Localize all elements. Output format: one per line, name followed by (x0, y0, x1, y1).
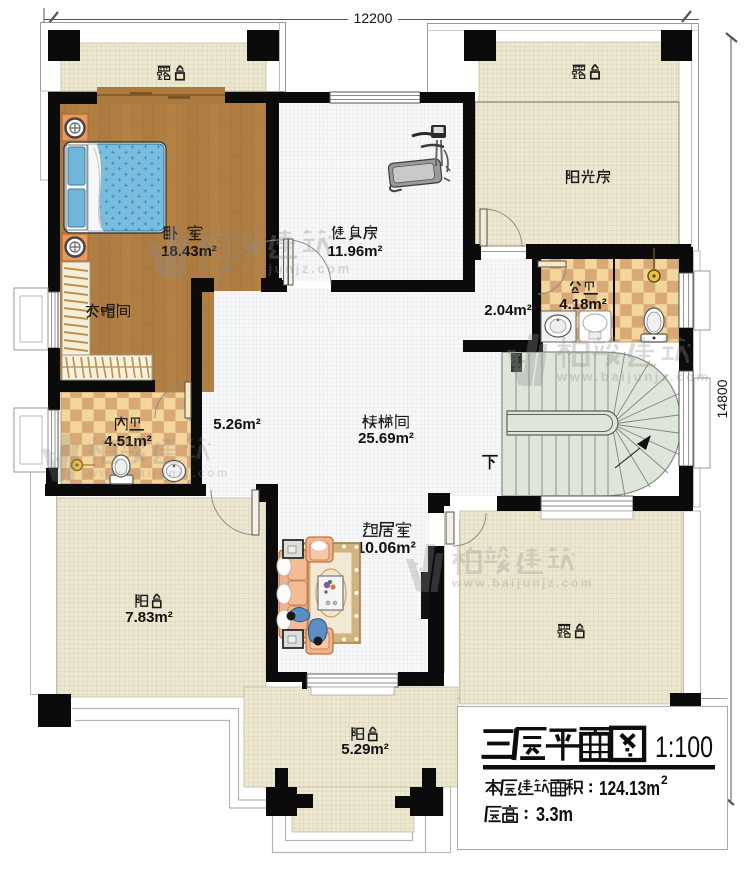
svg-text:www.baijunjz.com: www.baijunjz.com (451, 576, 594, 590)
svg-text:2.04m²: 2.04m² (484, 302, 532, 319)
svg-text:124.13m: 124.13m (599, 778, 660, 800)
svg-text:5.26m²: 5.26m² (213, 416, 261, 433)
svg-text:10.06m²: 10.06m² (356, 540, 416, 557)
svg-text:5.29m²: 5.29m² (341, 741, 389, 758)
svg-text:14800: 14800 (714, 379, 730, 418)
svg-text:1:100: 1:100 (655, 731, 713, 764)
svg-text:2: 2 (661, 773, 668, 787)
svg-text:www.baijunjz.com: www.baijunjz.com (556, 369, 711, 384)
svg-text:25.69m²: 25.69m² (358, 430, 414, 447)
svg-text:7.83m²: 7.83m² (125, 609, 173, 626)
svg-text:www.baijunjz.com: www.baijunjz.com (87, 466, 230, 480)
svg-text:4.18m²: 4.18m² (559, 296, 607, 313)
svg-text:11.96m²: 11.96m² (327, 243, 382, 260)
svg-text:12200: 12200 (354, 10, 393, 26)
svg-text:3.3m: 3.3m (536, 804, 573, 826)
svg-text:www.baijunjz.com: www.baijunjz.com (197, 261, 352, 276)
